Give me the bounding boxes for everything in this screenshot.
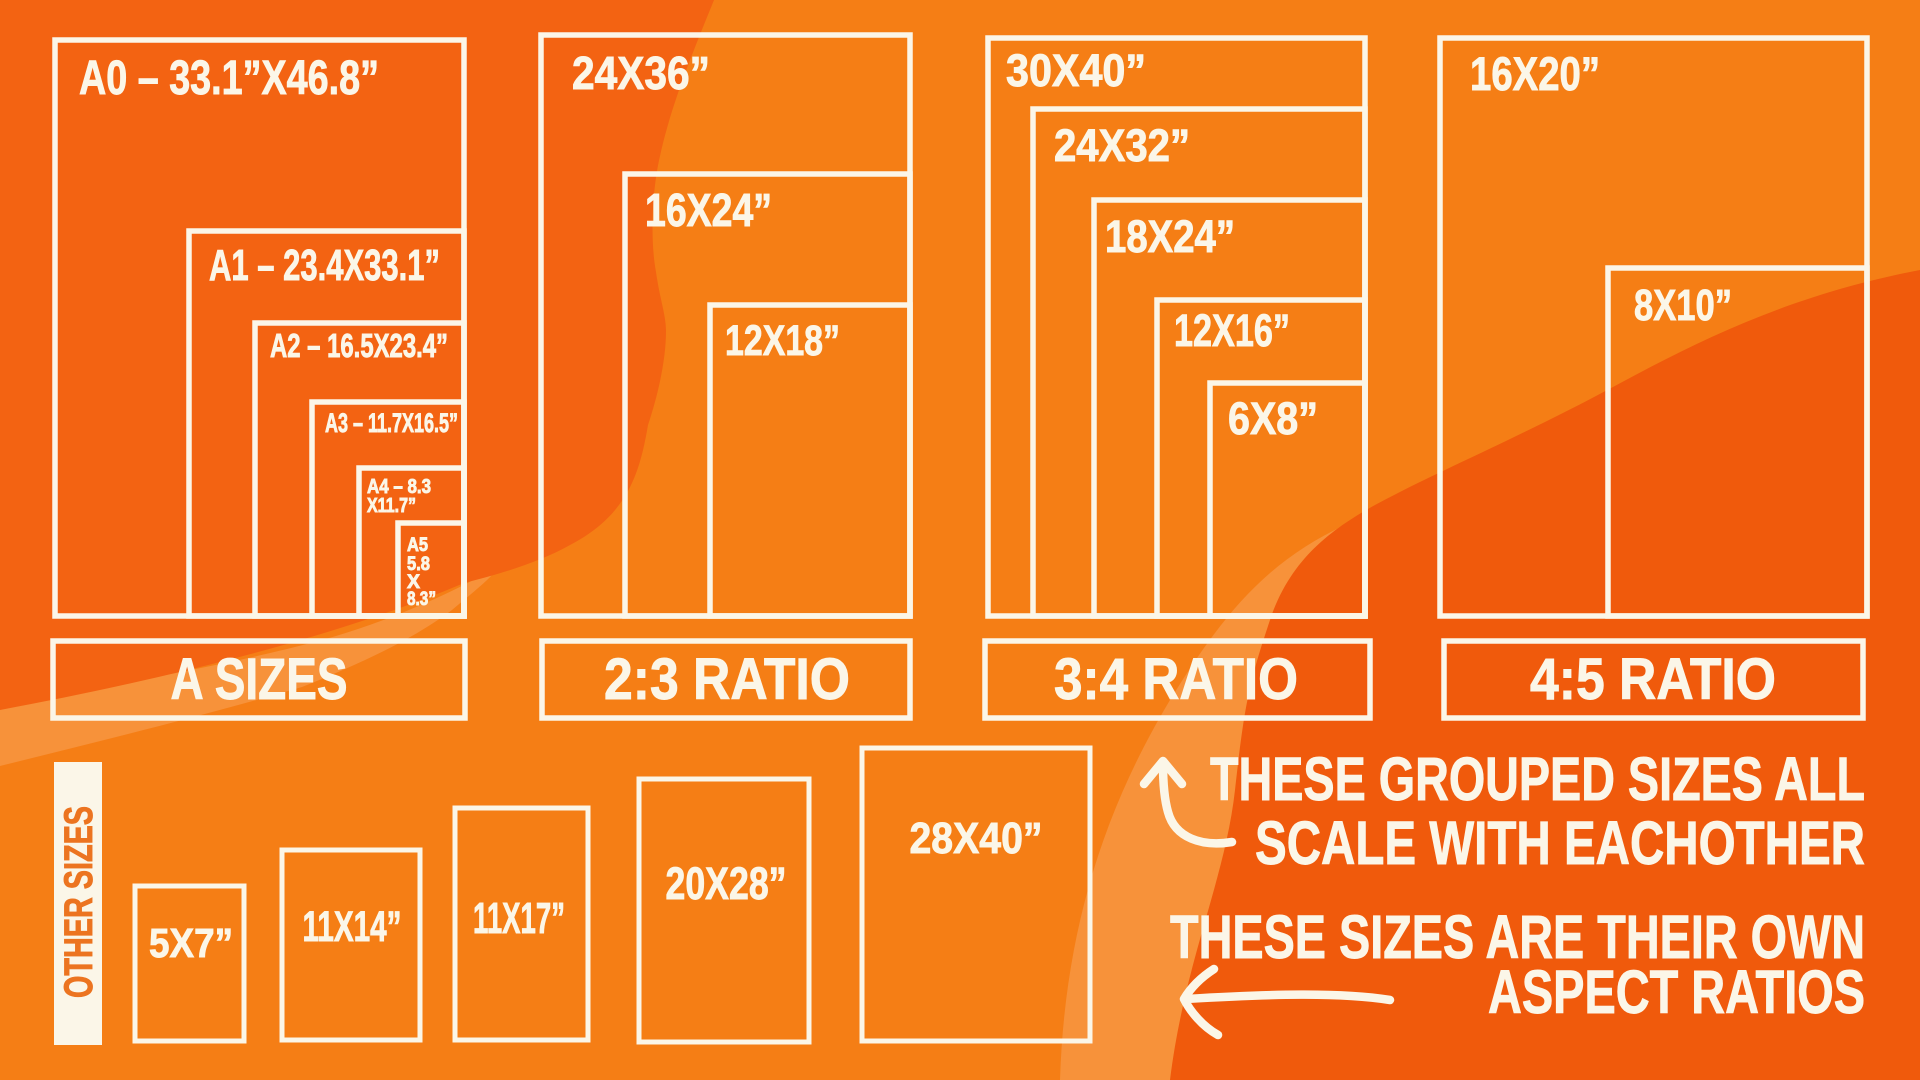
svg-text:16X24”: 16X24”	[645, 184, 772, 236]
svg-text:A3 – 11.7X16.5”: A3 – 11.7X16.5”	[325, 408, 458, 438]
svg-text:OTHER SIZES: OTHER SIZES	[57, 806, 101, 998]
svg-text:A0 – 33.1”X46.8”: A0 – 33.1”X46.8”	[79, 52, 379, 105]
svg-text:20X28”: 20X28”	[666, 858, 787, 909]
svg-text:5X7”: 5X7”	[149, 920, 233, 966]
svg-text:11X14”: 11X14”	[303, 903, 402, 951]
svg-text:8.3”: 8.3”	[407, 589, 436, 610]
svg-text:A5: A5	[407, 535, 428, 556]
svg-text:A1 – 23.4X33.1”: A1 – 23.4X33.1”	[209, 241, 440, 290]
svg-text:24X36”: 24X36”	[572, 47, 710, 99]
svg-text:28X40”: 28X40”	[910, 814, 1043, 863]
svg-text:8X10”: 8X10”	[1634, 281, 1732, 330]
svg-text:THESE GROUPED SIZES ALL: THESE GROUPED SIZES ALL	[1210, 745, 1865, 813]
svg-text:SCALE WITH EACHOTHER: SCALE WITH EACHOTHER	[1255, 809, 1865, 877]
svg-text:ASPECT RATIOS: ASPECT RATIOS	[1488, 958, 1865, 1026]
svg-text:12X16”: 12X16”	[1174, 305, 1290, 356]
svg-text:24X32”: 24X32”	[1054, 120, 1190, 171]
svg-text:4:5 RATIO: 4:5 RATIO	[1530, 647, 1776, 712]
svg-text:A SIZES: A SIZES	[171, 647, 348, 712]
svg-text:12X18”: 12X18”	[725, 317, 840, 365]
svg-text:11X17”: 11X17”	[473, 894, 565, 943]
svg-text:6X8”: 6X8”	[1228, 393, 1318, 444]
svg-text:30X40”: 30X40”	[1006, 45, 1146, 96]
svg-text:X11.7”: X11.7”	[367, 495, 416, 517]
svg-text:18X24”: 18X24”	[1105, 211, 1235, 262]
svg-text:A2 – 16.5X23.4”: A2 – 16.5X23.4”	[270, 327, 448, 364]
svg-text:2:3 RATIO: 2:3 RATIO	[604, 647, 850, 712]
svg-text:3:4 RATIO: 3:4 RATIO	[1054, 647, 1298, 712]
svg-text:16X20”: 16X20”	[1470, 47, 1600, 100]
